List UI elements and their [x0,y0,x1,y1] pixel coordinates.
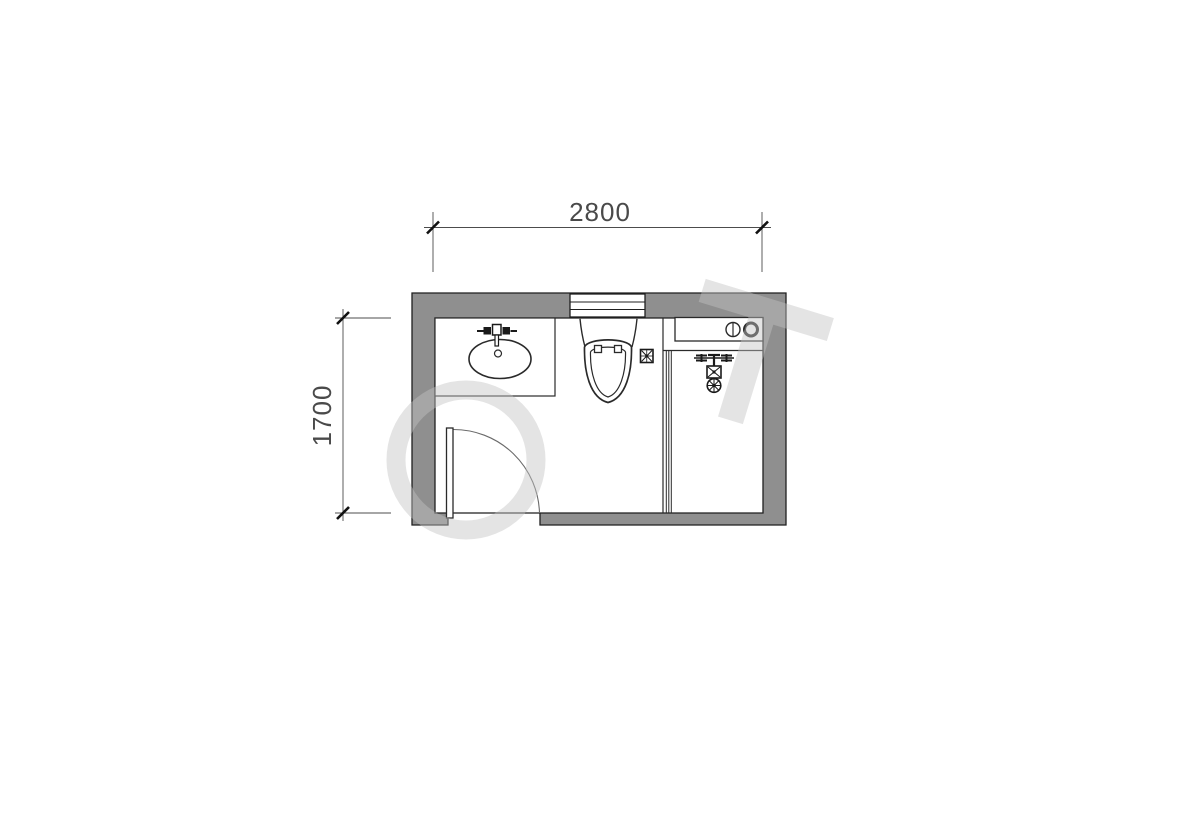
sink-drain [495,350,502,357]
sink-basin [469,340,531,379]
window [570,294,645,317]
window-frame [570,294,645,317]
floor-drain-icon [641,350,654,363]
door-leaf [447,428,454,518]
dimension-height-label: 1700 [307,385,337,447]
shower-mixer-icon [707,366,721,378]
floor-plan-page: 2800 1700 [0,0,1198,831]
shower-head-icon [707,379,721,393]
floor-plan-drawing: 2800 1700 [0,0,1198,831]
toilet-hinge [615,346,622,353]
toilet [580,319,637,403]
dimension-height: 1700 [307,309,391,521]
toilet-tank-side [632,319,637,347]
dimension-width: 2800 [424,197,771,272]
toilet-hinge [595,346,602,353]
dimension-width-label: 2800 [569,197,631,227]
toilet-tank-side [580,319,585,347]
